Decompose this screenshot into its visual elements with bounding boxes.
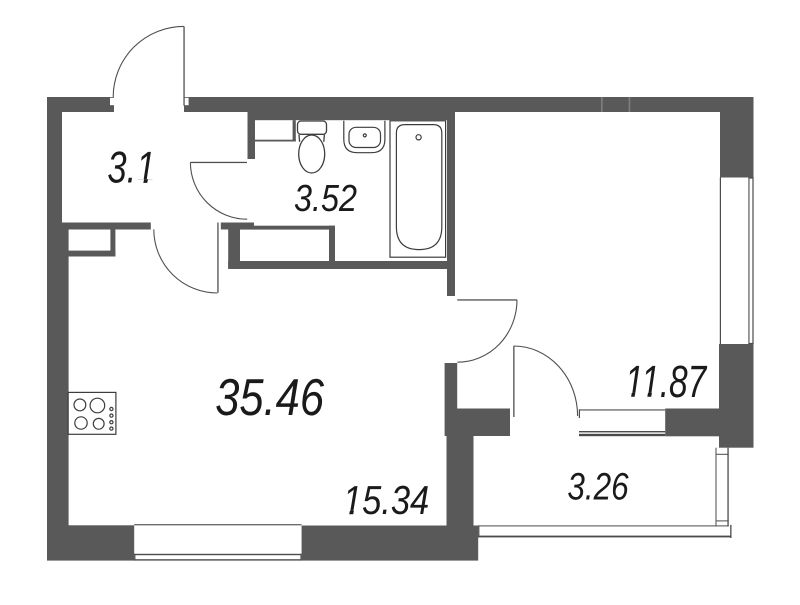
svg-text:15.34: 15.34 <box>343 477 429 523</box>
svg-text:11.87: 11.87 <box>625 356 708 407</box>
svg-text:3.26: 3.26 <box>567 466 629 509</box>
svg-text:3.52: 3.52 <box>294 178 357 220</box>
svg-text:3.1: 3.1 <box>107 144 155 193</box>
svg-text:35.46: 35.46 <box>215 368 324 426</box>
